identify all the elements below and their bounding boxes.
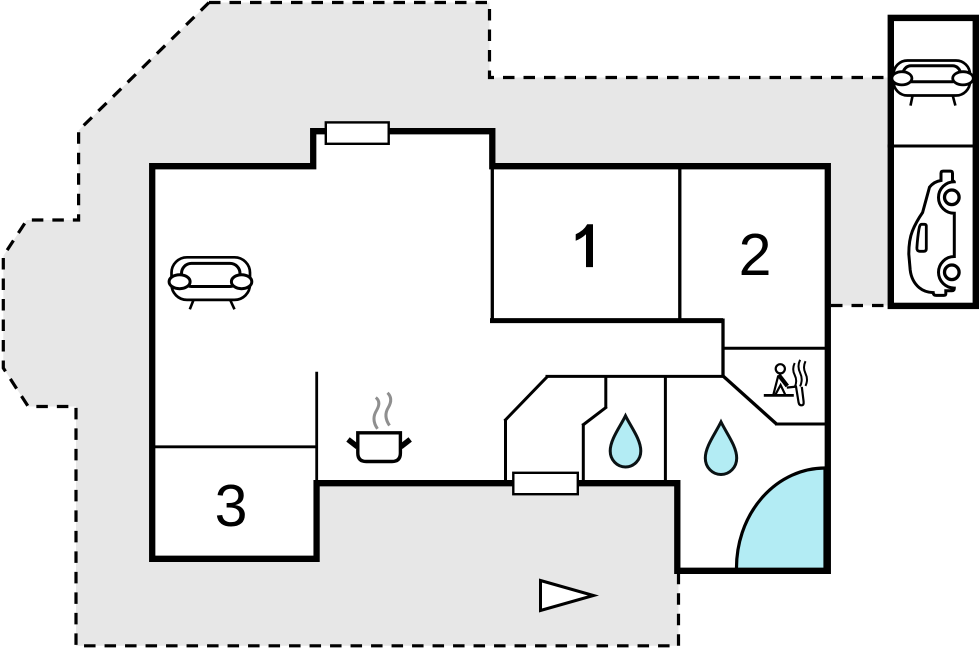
svg-text:2: 2 [739,222,772,288]
svg-text:3: 3 [215,473,248,539]
